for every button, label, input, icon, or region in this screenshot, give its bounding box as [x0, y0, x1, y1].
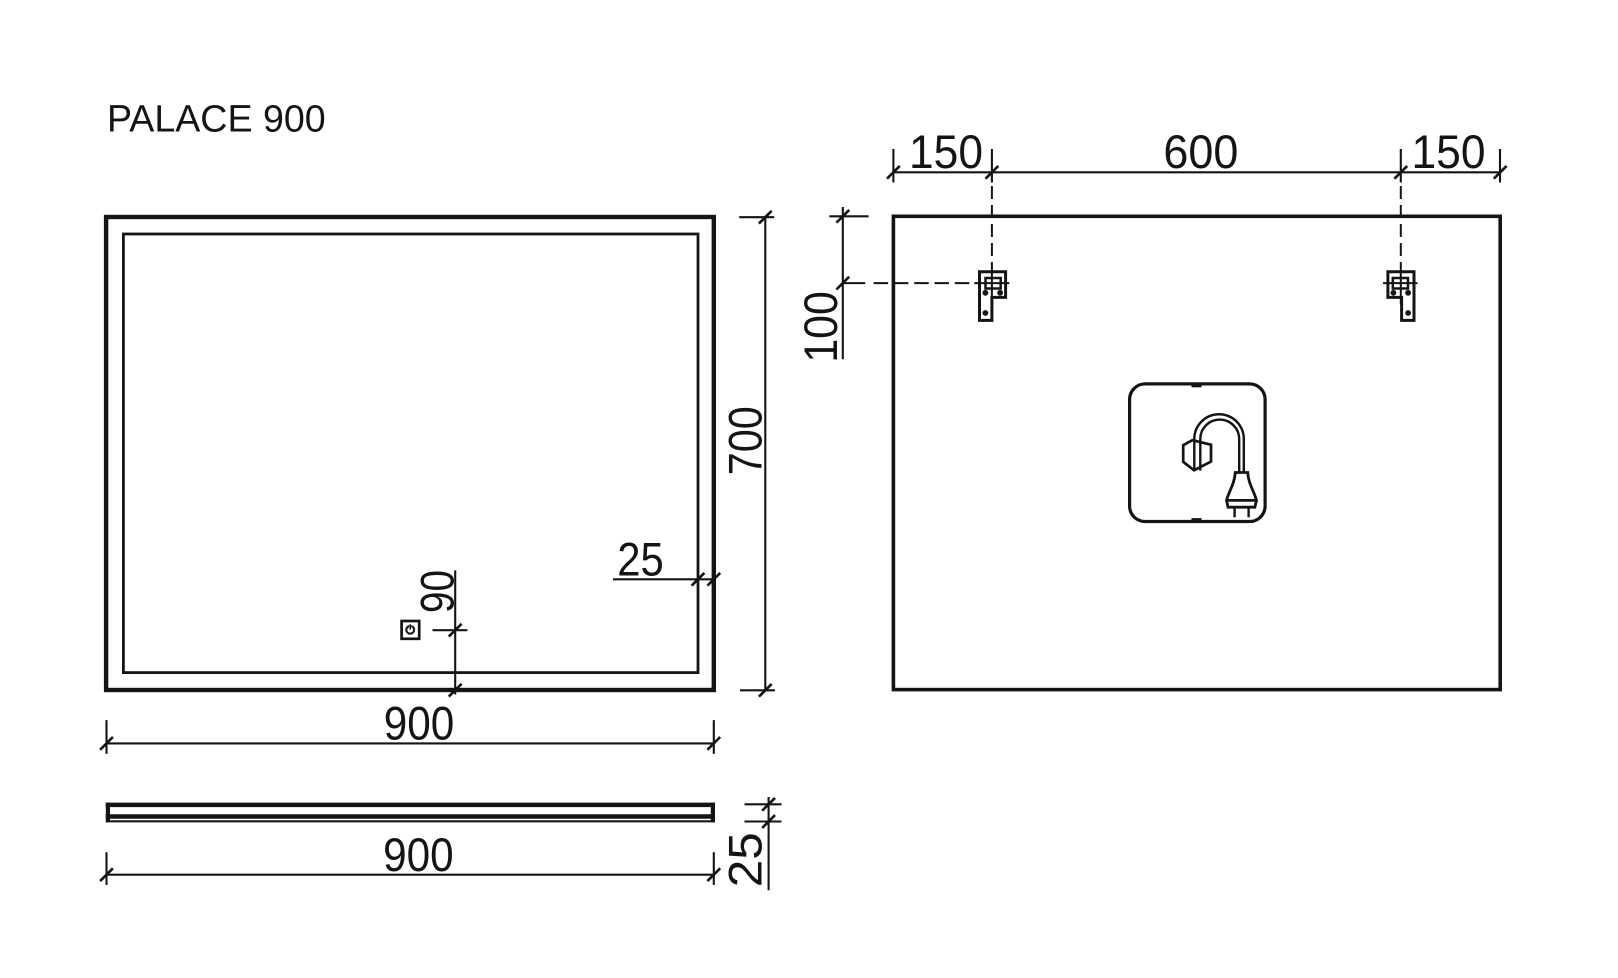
- svg-text:600: 600: [1163, 126, 1238, 179]
- svg-text:900: 900: [383, 829, 454, 882]
- svg-text:25: 25: [719, 832, 772, 887]
- svg-text:90: 90: [412, 570, 465, 613]
- svg-text:150: 150: [909, 126, 983, 179]
- svg-text:150: 150: [1412, 126, 1486, 179]
- svg-text:PALACE 900: PALACE 900: [107, 98, 326, 140]
- svg-text:25: 25: [617, 534, 664, 587]
- svg-text:700: 700: [720, 406, 773, 475]
- svg-text:100: 100: [795, 291, 848, 363]
- svg-text:900: 900: [384, 697, 455, 750]
